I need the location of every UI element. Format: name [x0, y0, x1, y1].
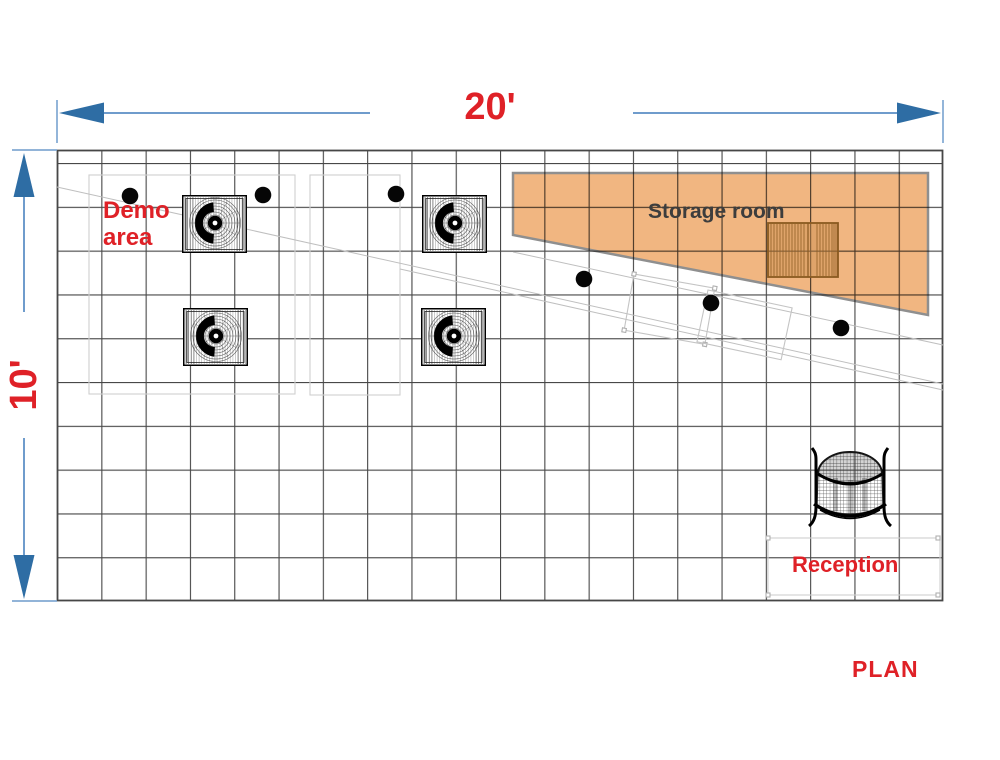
arrow-left-icon — [59, 103, 104, 124]
arrow-right-icon — [897, 103, 941, 124]
demo-chair-icon-1 — [183, 196, 247, 253]
reception-label: Reception — [792, 553, 898, 577]
width-dimension-label: 20' — [450, 87, 530, 129]
storage-room-label: Storage room — [648, 200, 785, 223]
arrow-down-icon — [14, 555, 35, 599]
floor-dot-3 — [388, 186, 405, 203]
demo-area-label: Demo area — [103, 197, 170, 251]
floor-dot-6 — [833, 320, 850, 337]
floor-dot-2 — [255, 187, 272, 204]
demo-chair-icon-3 — [184, 309, 248, 366]
arrow-up-icon — [14, 153, 35, 197]
floor-plan-canvas: 20' 10' Demo area Storage room Reception… — [0, 0, 1000, 760]
demo-chair-icon-4 — [422, 309, 486, 366]
plan-title: PLAN — [852, 657, 919, 682]
height-dimension-label: 10' — [4, 359, 46, 410]
floor-dot-4 — [576, 271, 593, 288]
floor-dot-5 — [703, 295, 720, 312]
storage-crate-icon — [768, 223, 838, 277]
demo-chair-icon-2 — [423, 196, 487, 253]
